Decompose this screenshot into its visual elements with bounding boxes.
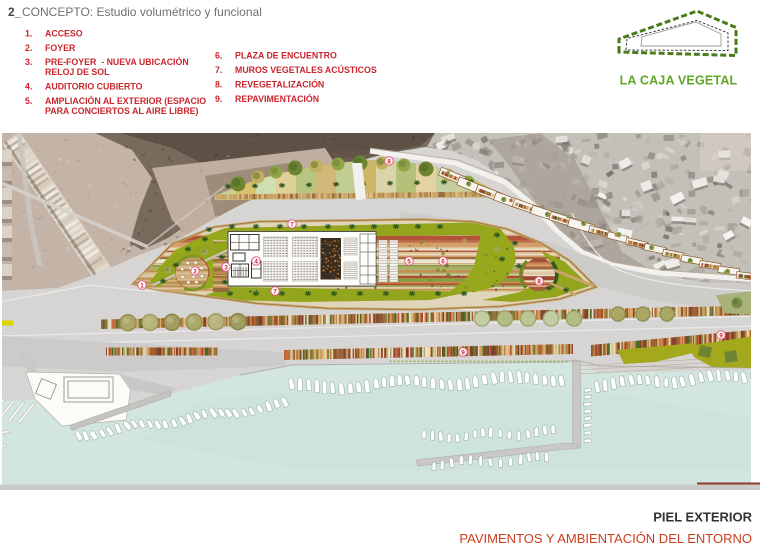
svg-text:PRE-FOYER - NUEVA UBICACIÓN: PRE-FOYER - NUEVA UBICACIÓN xyxy=(45,56,189,67)
svg-text:5: 5 xyxy=(407,259,411,266)
svg-text:3: 3 xyxy=(224,265,228,272)
svg-text:LA CAJA VEGETAL: LA CAJA VEGETAL xyxy=(620,74,738,88)
svg-text:9: 9 xyxy=(719,333,723,340)
svg-text:AUDITORIO CUBIERTO: AUDITORIO CUBIERTO xyxy=(45,82,143,92)
svg-text:2_CONCEPTO: Estudio volumétric: 2_CONCEPTO: Estudio volumétrico y funcio… xyxy=(8,5,262,19)
svg-text:5.: 5. xyxy=(25,96,32,106)
svg-text:REPAVIMENTACIÓN: REPAVIMENTACIÓN xyxy=(235,93,319,104)
svg-text:8: 8 xyxy=(537,279,541,286)
svg-text:7: 7 xyxy=(290,222,294,229)
svg-text:REVEGETALIZACIÓN: REVEGETALIZACIÓN xyxy=(235,79,324,90)
svg-text:8.: 8. xyxy=(215,80,222,90)
svg-text:6.: 6. xyxy=(215,51,222,61)
svg-text:9: 9 xyxy=(461,350,465,357)
svg-text:PAVIMENTOS Y AMBIENTACIÓN DEL: PAVIMENTOS Y AMBIENTACIÓN DEL ENTORNO xyxy=(459,531,752,546)
svg-text:PIEL EXTERIOR: PIEL EXTERIOR xyxy=(653,510,752,525)
svg-text:1.: 1. xyxy=(25,28,32,38)
svg-text:PARA CONCIERTOS AL AIRE LIBRE): PARA CONCIERTOS AL AIRE LIBRE) xyxy=(45,106,199,116)
svg-text:4.: 4. xyxy=(25,82,32,92)
svg-text:AMPLIACIÓN AL EXTERIOR (ESPACI: AMPLIACIÓN AL EXTERIOR (ESPACIO xyxy=(45,95,206,106)
svg-text:3.: 3. xyxy=(25,57,32,67)
svg-text:4: 4 xyxy=(254,259,258,266)
svg-text:7.: 7. xyxy=(215,65,222,75)
svg-text:MUROS VEGETALES ACÚSTICOS: MUROS VEGETALES ACÚSTICOS xyxy=(235,64,377,75)
svg-text:RELOJ DE SOL: RELOJ DE SOL xyxy=(45,67,110,77)
svg-text:6: 6 xyxy=(441,259,445,266)
svg-text:8: 8 xyxy=(387,159,391,166)
svg-text:9.: 9. xyxy=(215,94,222,104)
svg-text:2: 2 xyxy=(193,269,197,276)
svg-text:FOYER: FOYER xyxy=(45,43,76,53)
svg-text:PLAZA DE ENCUENTRO: PLAZA DE ENCUENTRO xyxy=(235,51,337,61)
svg-text:7: 7 xyxy=(273,289,277,296)
svg-text:ACCESO: ACCESO xyxy=(45,28,83,38)
svg-text:2.: 2. xyxy=(25,43,32,53)
svg-text:1: 1 xyxy=(140,283,144,290)
